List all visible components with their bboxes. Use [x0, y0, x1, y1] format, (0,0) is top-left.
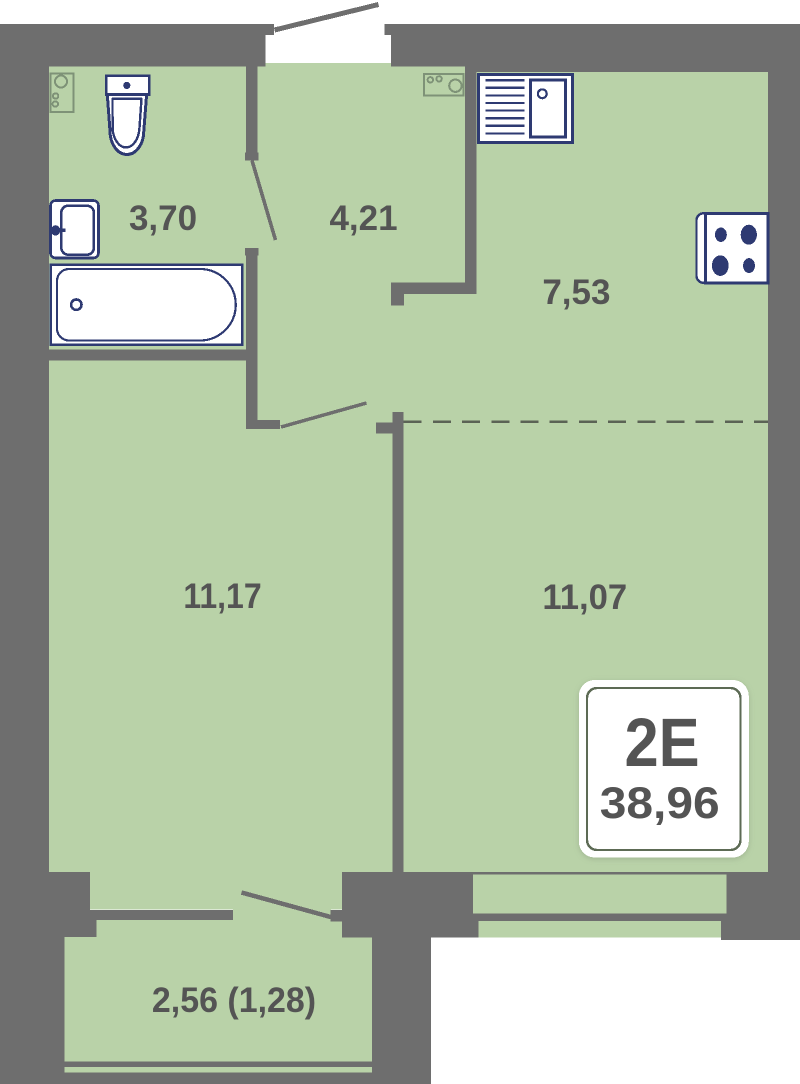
- svg-text:2,56 (1,28): 2,56 (1,28): [152, 982, 316, 1021]
- svg-text:4,21: 4,21: [329, 199, 397, 238]
- svg-text:38,96: 38,96: [600, 778, 720, 828]
- svg-text:3,70: 3,70: [129, 199, 197, 238]
- svg-text:7,53: 7,53: [542, 273, 610, 312]
- svg-text:11,17: 11,17: [183, 578, 261, 617]
- svg-text:2E: 2E: [624, 703, 699, 780]
- svg-text:11,07: 11,07: [542, 578, 627, 617]
